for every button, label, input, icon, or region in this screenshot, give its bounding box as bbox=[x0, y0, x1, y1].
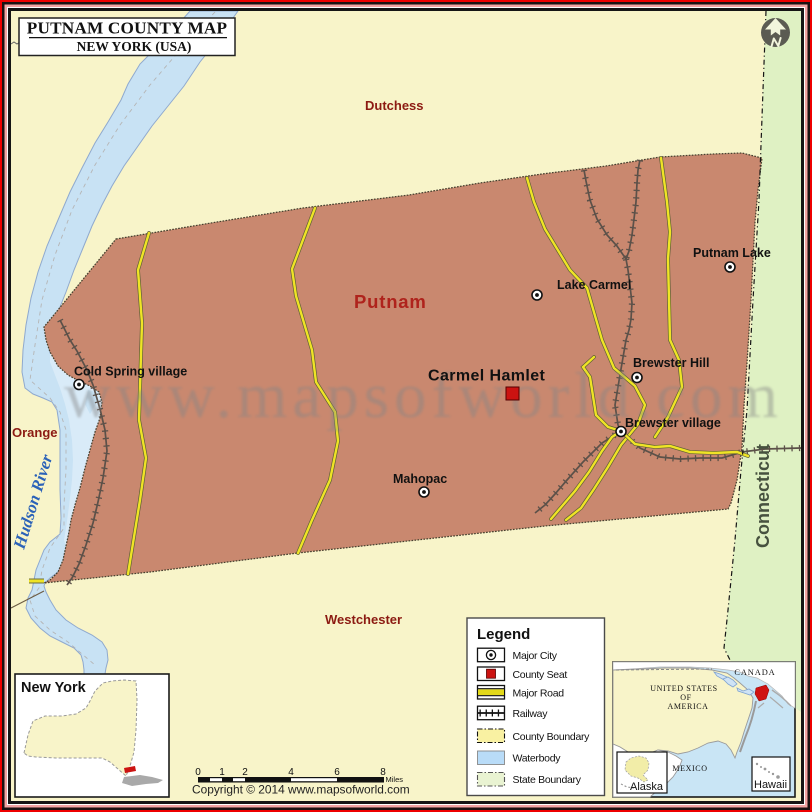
svg-text:CANADA: CANADA bbox=[734, 668, 775, 677]
svg-text:0: 0 bbox=[195, 767, 201, 778]
svg-text:1: 1 bbox=[219, 767, 225, 778]
svg-text:MEXICO: MEXICO bbox=[672, 764, 707, 773]
svg-text:Copyright © 2014 www.mapsofwor: Copyright © 2014 www.mapsofworld.com bbox=[192, 783, 410, 797]
svg-text:6: 6 bbox=[334, 767, 340, 778]
svg-text:New York: New York bbox=[21, 680, 87, 696]
svg-text:Hawaii: Hawaii bbox=[754, 779, 787, 791]
svg-text:4: 4 bbox=[288, 767, 294, 778]
svg-text:OF: OF bbox=[680, 693, 691, 702]
svg-text:AMERICA: AMERICA bbox=[667, 702, 708, 711]
svg-text:UNITED STATES: UNITED STATES bbox=[650, 684, 717, 693]
svg-text:Alaska: Alaska bbox=[630, 781, 664, 793]
svg-text:2: 2 bbox=[242, 767, 248, 778]
